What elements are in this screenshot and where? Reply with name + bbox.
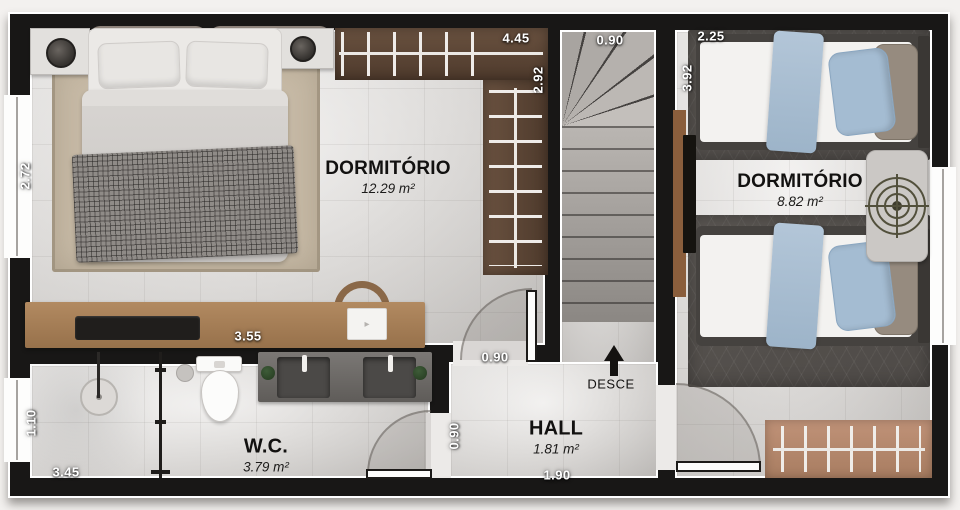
desce-arrow-stem-icon: [610, 360, 618, 376]
dimension-desk-length: 3.55: [235, 329, 262, 344]
nightstand-between-beds: [866, 150, 928, 262]
room-label-bedroom1: DORMITÓRIO 12.29 m²: [325, 158, 451, 196]
dimension-wc-length: 3.45: [53, 465, 80, 480]
room-label-bedroom2: DORMITÓRIO 8.82 m²: [737, 171, 863, 209]
plant-icon: [261, 366, 275, 380]
pillow-blue: [827, 47, 897, 138]
room-name: DORMITÓRIO: [325, 158, 451, 180]
flush-button: [214, 361, 225, 368]
dimension-bedroom2-length: 3.92: [680, 65, 695, 92]
room-area: 12.29 m²: [325, 181, 451, 196]
floor-drain: [176, 364, 194, 382]
room-area: 8.82 m²: [737, 194, 863, 209]
wardrobe-rail: [339, 52, 543, 55]
double-bed: [88, 28, 282, 262]
closet-rail: [773, 448, 925, 451]
target-decor-icon: [867, 176, 927, 236]
bed-runner: [766, 222, 825, 349]
stairs-direction-label: DESCE: [587, 377, 634, 392]
partition-hinge: [155, 368, 166, 372]
room-name: DORMITÓRIO: [737, 171, 863, 193]
single-bed-top: [696, 34, 930, 150]
dimension-stairs-width: 0.90: [597, 33, 624, 48]
faucet-icon: [302, 355, 307, 372]
wardrobe-rail: [514, 88, 517, 268]
plant-icon: [413, 366, 427, 380]
pillow: [185, 41, 269, 90]
headboard: [918, 36, 930, 148]
plaid-blanket: [72, 145, 298, 263]
dimension-bedroom2-width: 2.25: [698, 29, 725, 44]
partition-foot: [151, 470, 170, 474]
stairs-treads: [562, 126, 654, 322]
dimension-wc-door: 0.90: [447, 423, 462, 450]
wall-tv: [683, 135, 696, 253]
dimension-closet-side: 2.92: [531, 67, 546, 94]
faucet-icon: [388, 355, 393, 372]
laptop: ▸: [347, 308, 387, 340]
room-name: HALL: [529, 418, 583, 441]
lamp-icon: [46, 38, 76, 68]
desce-arrow-icon: [604, 345, 624, 361]
dimension-hall-length: 1.90: [544, 468, 571, 483]
dimension-closet-width: 4.45: [503, 31, 530, 46]
wardrobe-side: [483, 80, 548, 275]
door-opening-bedroom2: [656, 385, 677, 470]
shower-rod: [97, 352, 100, 398]
lamp-icon: [290, 36, 316, 62]
vanity: [258, 352, 432, 402]
door-leaf-bedroom1: [526, 290, 537, 362]
nightstand-left: [30, 28, 90, 75]
desk: ▸: [25, 302, 425, 348]
window-bedroom2: [930, 167, 956, 345]
room-label-hall: HALL 1.81 m²: [529, 418, 583, 457]
room-label-wc: W.C. 3.79 m²: [243, 436, 289, 475]
pillow: [97, 41, 181, 90]
door-leaf-bedroom2: [676, 461, 761, 472]
dimension-bedroom1-door: 0.90: [482, 350, 509, 365]
dimension-bedroom1-side: 2.72: [18, 163, 33, 190]
duvet-fold: [82, 90, 288, 106]
room-name: W.C.: [243, 436, 289, 459]
room-area: 3.79 m²: [243, 460, 289, 475]
closet-bedroom2: [765, 420, 932, 478]
bed-runner: [766, 30, 824, 153]
dimension-wc-side: 1.10: [24, 410, 39, 437]
partition-hinge: [155, 420, 166, 424]
room-area: 1.81 m²: [529, 442, 583, 457]
door-leaf-wc: [366, 469, 432, 479]
tv-console: [75, 316, 200, 340]
